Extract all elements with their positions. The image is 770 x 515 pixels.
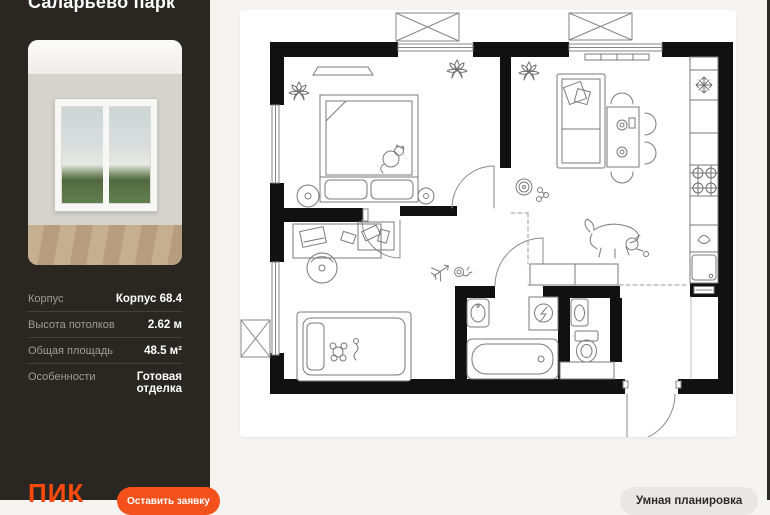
door-jamb [676,381,681,388]
radiator-strip [585,54,649,60]
dog [585,219,648,258]
apartment-photo[interactable] [28,40,182,265]
spec-label: Особенности [28,371,96,383]
spec-value: 2.62 м [148,319,182,331]
dining-table [607,93,656,183]
bath-sink [467,299,489,327]
toilet-sink [571,299,588,326]
floor-flowers [537,188,549,202]
nightstand-left [297,185,319,207]
window-mullion [103,104,109,206]
pik-logo: ПИК [28,478,84,509]
spec-row-ceiling-height: Высота потолков 2.62 м [28,312,182,338]
plant-icon [519,62,539,80]
shelf-box [358,222,394,250]
smart-layout-button[interactable]: Умная планировка [620,487,758,515]
plant-icon [447,60,467,78]
sidebar: Саларьево парк Корпус Корпус 68.4 Высота… [0,0,210,500]
spec-value: Готовая отделка [96,371,182,395]
request-button[interactable]: Оставить заявку [117,487,220,515]
photo-window [54,98,158,212]
spec-row-features: Особенности Готовая отделка [28,364,182,401]
toilet [575,331,598,362]
photo-ceiling [28,40,182,74]
kitchen-counter [690,57,718,283]
toy-snail [455,267,473,277]
toilet-shelf [560,362,614,379]
spec-label: Корпус [28,293,63,305]
toy-plane [429,259,453,282]
spec-row-korpus: Корпус Корпус 68.4 [28,286,182,312]
spec-value: 48.5 м² [144,345,182,357]
spec-list: Корпус Корпус 68.4 Высота потолков 2.62 … [28,286,182,401]
plant-icon [289,82,309,100]
floor-plan-card [240,10,736,437]
robot-vacuum [516,179,532,195]
floor-plan [240,10,736,437]
page-title: Саларьево парк [28,0,175,13]
hall-wardrobe [530,264,618,285]
spec-label: Общая площадь [28,345,113,357]
window-pane-right [107,106,151,204]
hall-living-door [452,166,494,208]
spec-row-total-area: Общая площадь 48.5 м² [28,338,182,364]
spec-label: Высота потолков [28,319,115,331]
kids-bed [297,312,411,381]
nightstand-right [418,188,434,204]
entrance-door [627,394,675,437]
door-jamb [363,209,368,221]
bathtub [467,339,558,379]
sofa [557,74,605,168]
spec-value: Корпус 68.4 [116,293,182,305]
window-pane-left [61,106,105,204]
washing-machine [529,297,558,330]
door-jamb [623,381,628,388]
photo-floor [28,225,182,265]
shelf [313,67,373,75]
